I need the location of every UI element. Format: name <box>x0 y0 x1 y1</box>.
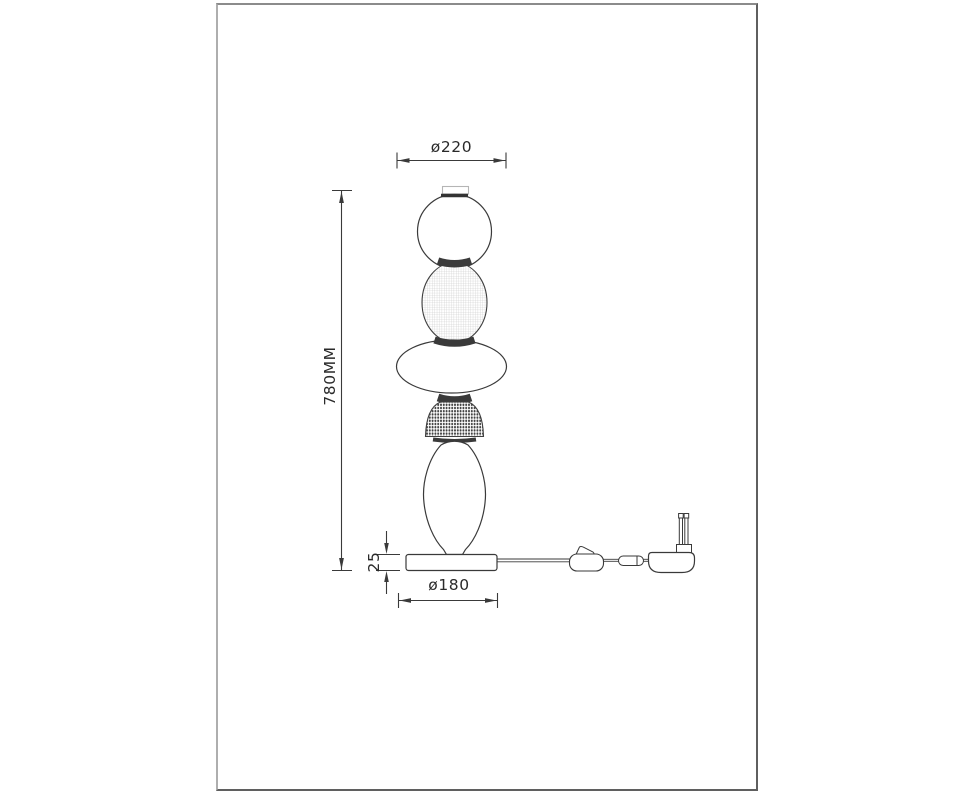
base-thickness-label: 25 <box>366 552 382 573</box>
joint-band-upper <box>438 261 471 264</box>
textured-dome-shade <box>426 402 484 441</box>
power-plug <box>649 514 695 573</box>
joint-band-middle <box>435 340 475 343</box>
dim-base-diameter <box>399 593 498 608</box>
egg-glass-shade <box>424 441 486 554</box>
drawing-page: ø220 780MM 25 ø180 <box>0 0 978 800</box>
top-diameter-label: ø220 <box>401 139 502 155</box>
base-diameter-label: ø180 <box>399 577 499 593</box>
overall-height-label: 780MM <box>322 346 338 405</box>
round-base <box>406 555 497 571</box>
textured-barrel-shade <box>422 263 487 343</box>
lamp-technical-drawing <box>0 0 978 800</box>
ellipse-disc-shade <box>397 340 507 393</box>
cord-connector <box>619 556 644 566</box>
top-cap <box>443 187 469 195</box>
joint-band-lower <box>438 398 471 401</box>
inline-switch <box>570 546 604 571</box>
sphere-glass-shade <box>418 195 492 269</box>
